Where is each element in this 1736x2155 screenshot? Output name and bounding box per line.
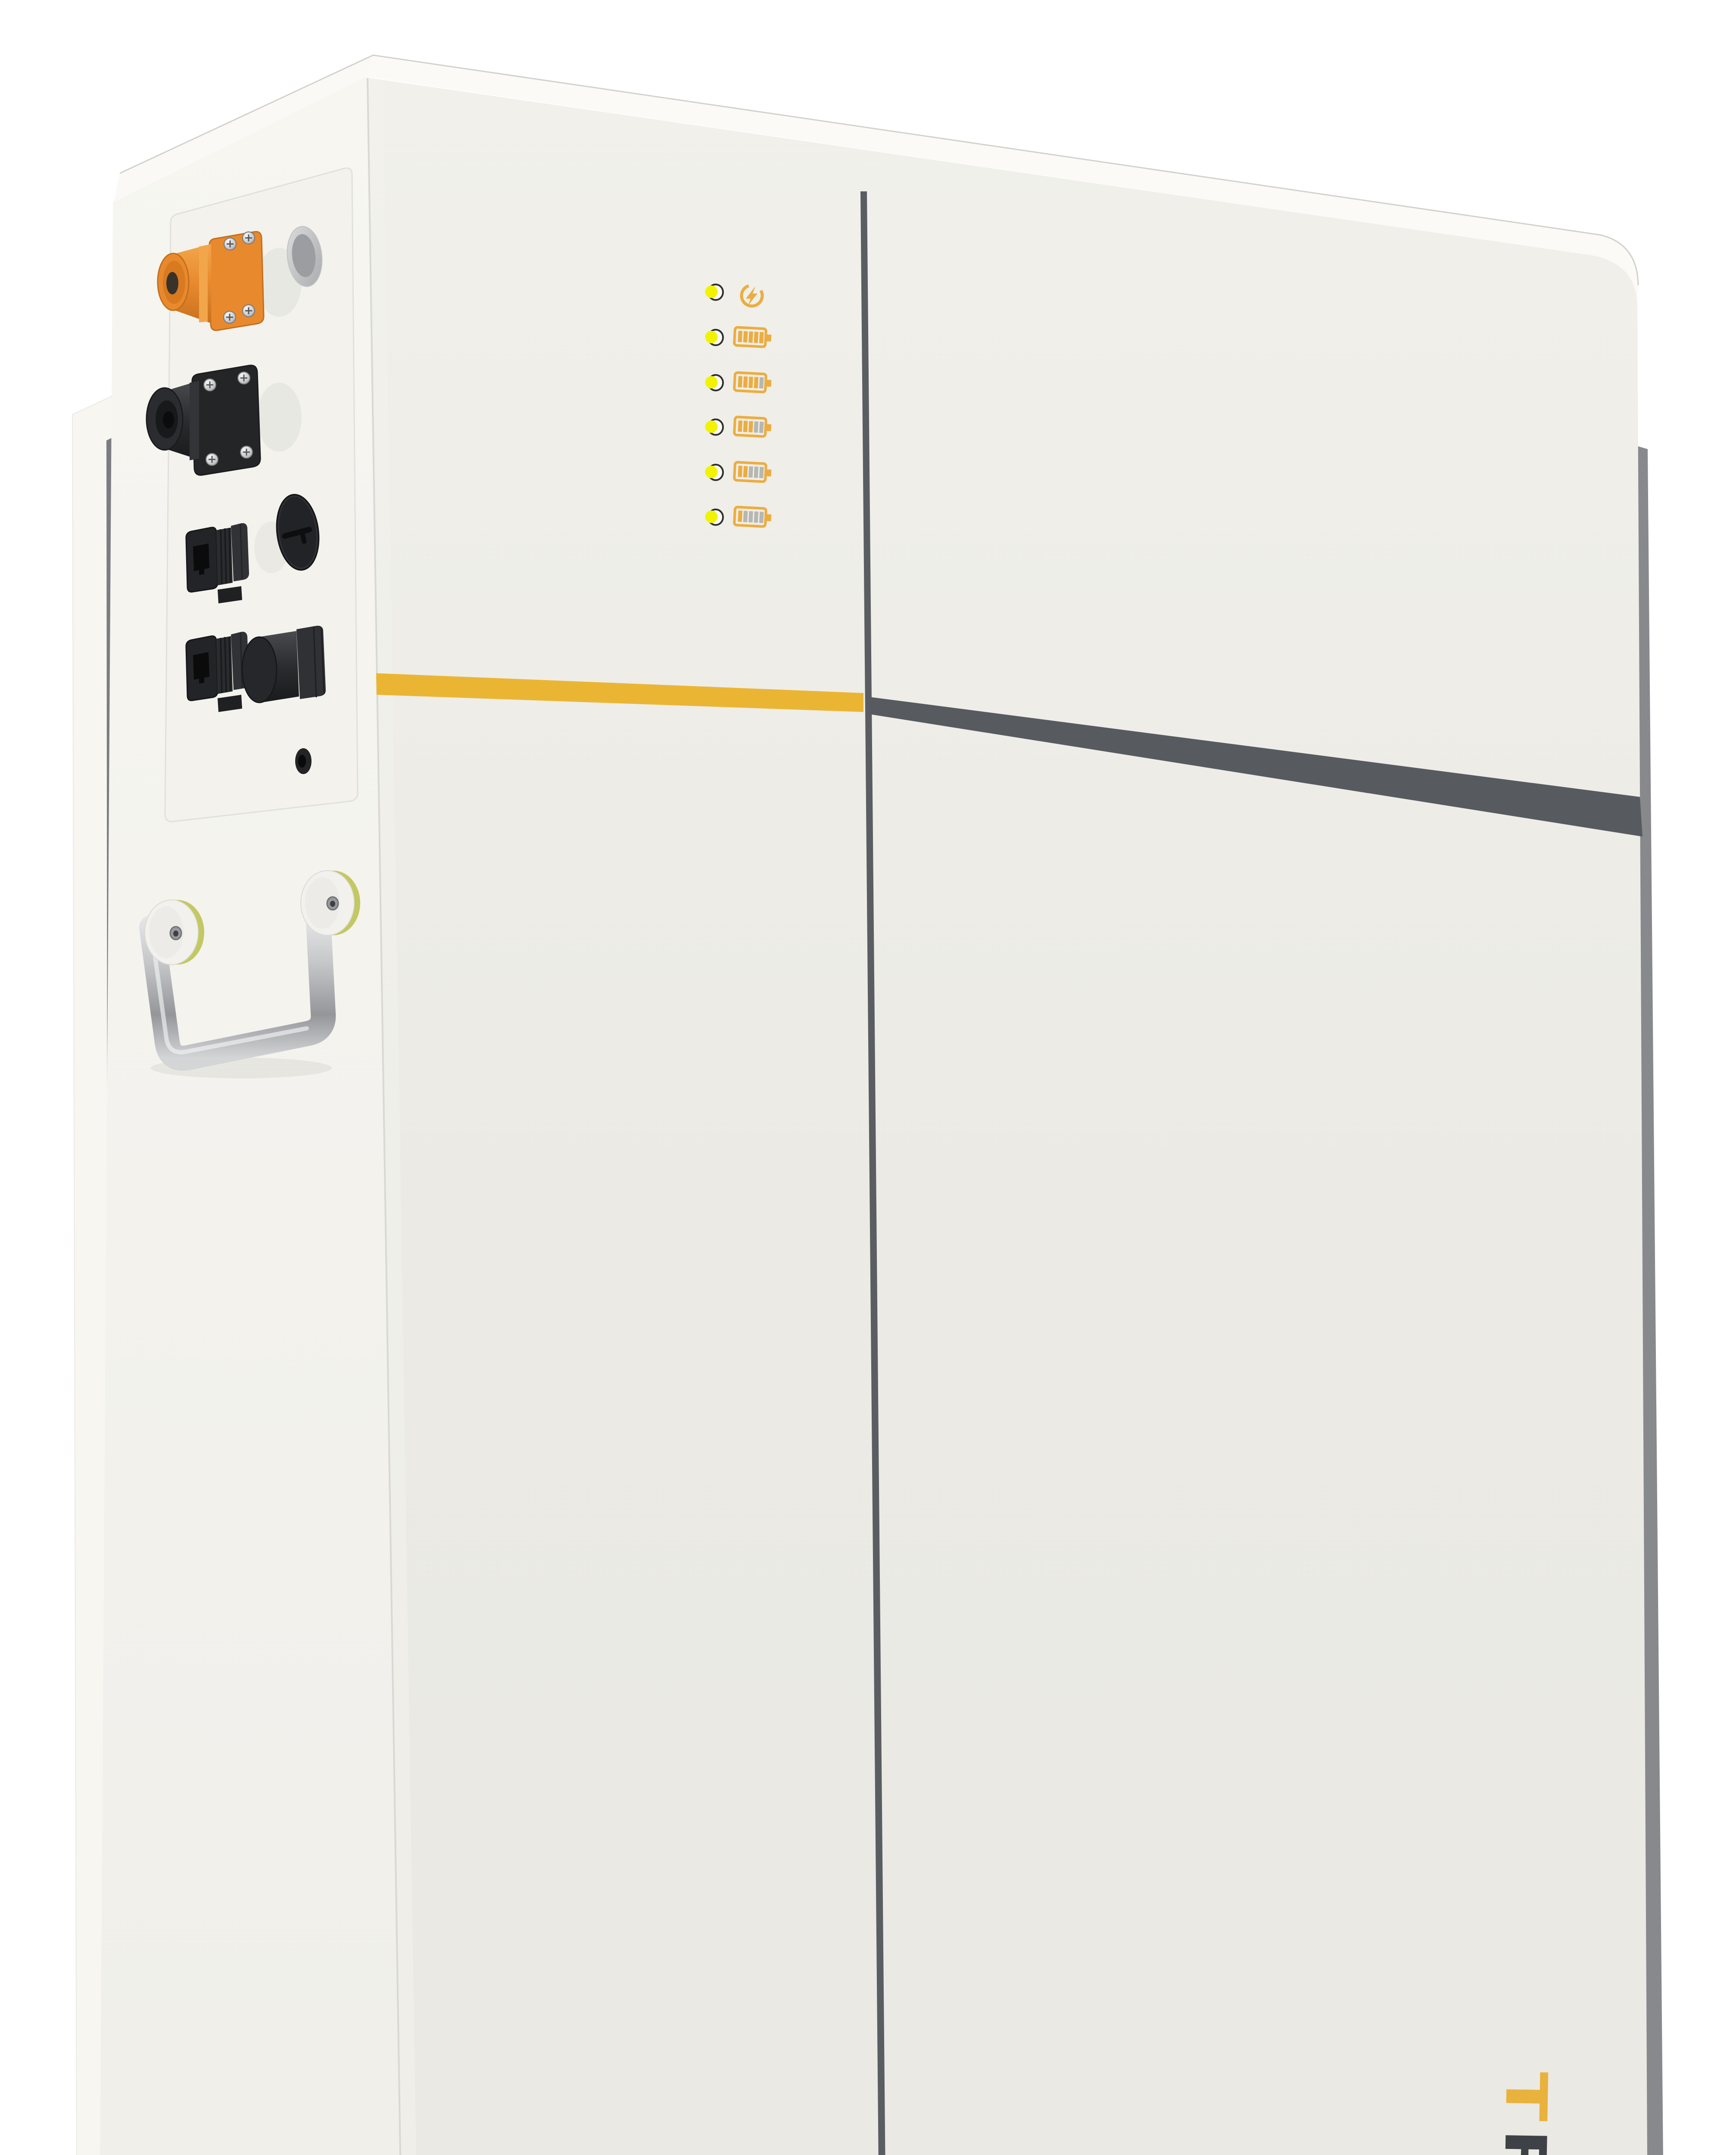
handle-mount-left — [145, 900, 204, 965]
battery-bar — [743, 376, 748, 387]
battery-bar — [759, 467, 764, 478]
battery-bar — [759, 422, 764, 433]
battery-bar — [748, 421, 753, 432]
battery-bar — [754, 421, 759, 432]
dc-positive-bore — [166, 272, 178, 294]
battery-bar — [754, 511, 759, 522]
vent-grommet — [295, 748, 312, 774]
handle-mount-right — [301, 871, 360, 935]
battery-bar — [748, 377, 753, 388]
battery-unit-render: TRIPLE POWER — [0, 0, 1736, 2155]
battery-bar — [743, 331, 748, 342]
battery-bar — [743, 511, 748, 522]
brand-wordmark-triple: TRIPLE — [1487, 2071, 1559, 2155]
battery-bar — [738, 331, 742, 342]
connector-panel — [146, 168, 358, 821]
battery-bar — [754, 331, 759, 343]
battery-bar — [738, 376, 742, 387]
battery-bar — [738, 511, 742, 522]
battery-bar — [754, 377, 759, 388]
battery-bar — [759, 377, 764, 388]
battery-bar — [748, 331, 753, 343]
battery-bar — [759, 512, 764, 523]
battery-bar — [748, 466, 753, 478]
front-face — [367, 78, 1649, 2155]
battery-bar — [743, 466, 748, 477]
battery-bar — [754, 466, 759, 478]
battery-bar — [738, 421, 742, 432]
rj45-port-opening — [193, 543, 209, 571]
render-stage: TRIPLE POWER — [0, 0, 1736, 2155]
battery-bar — [738, 466, 742, 477]
battery-bar — [743, 421, 748, 432]
dc-negative-bore — [163, 411, 174, 428]
battery-bar — [759, 332, 764, 343]
battery-bar — [748, 511, 753, 522]
reflection-blob — [257, 383, 302, 452]
